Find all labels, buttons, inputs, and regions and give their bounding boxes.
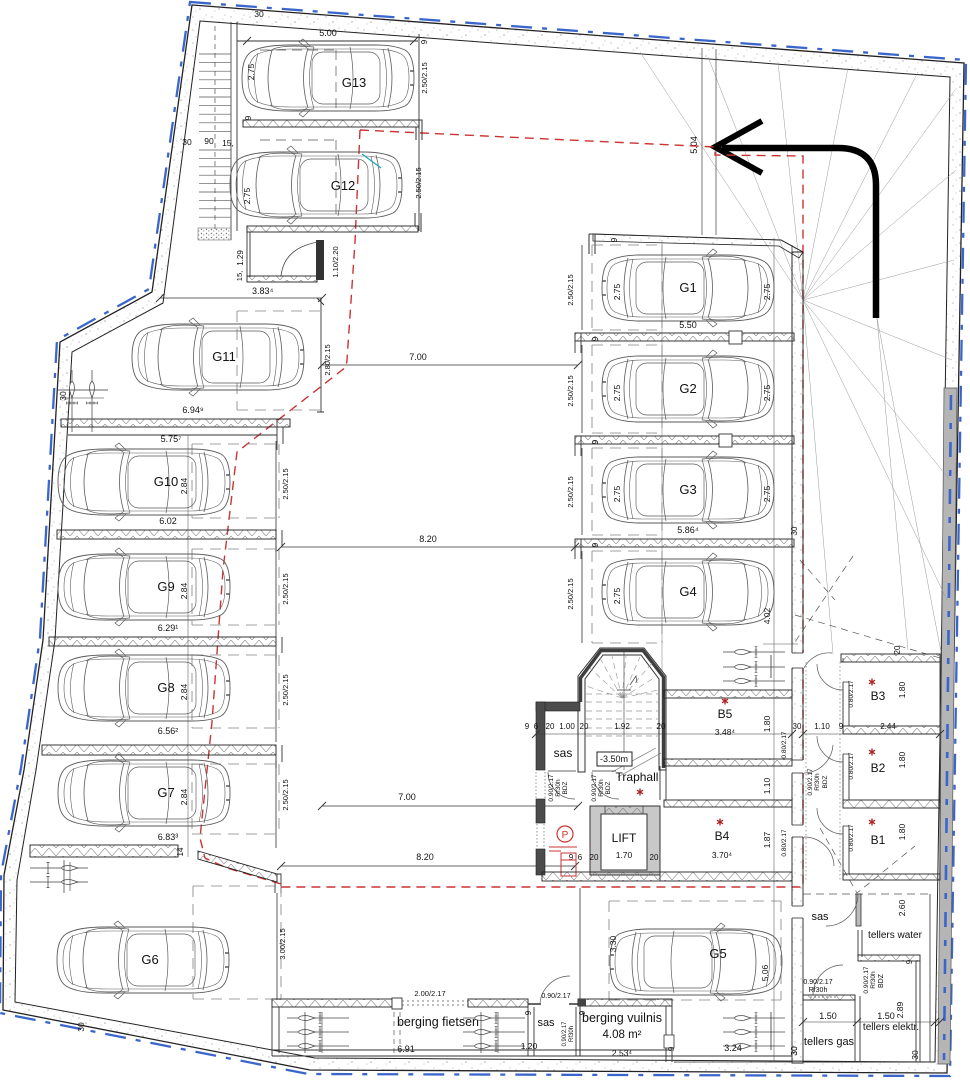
svg-text:0.80/2.17: 0.80/2.17 [781, 829, 788, 856]
svg-text:0.90/2.17: 0.90/2.17 [591, 774, 598, 801]
svg-text:2.80/2.15: 2.80/2.15 [323, 344, 332, 375]
svg-text:B4: B4 [715, 829, 730, 843]
svg-text:9: 9 [524, 1010, 533, 1015]
svg-text:9: 9 [525, 722, 530, 731]
svg-text:8.20: 8.20 [416, 852, 434, 862]
svg-text:2.89: 2.89 [895, 1001, 905, 1018]
svg-text:4.08 m²: 4.08 m² [603, 1029, 642, 1041]
svg-text:1.87: 1.87 [762, 831, 772, 848]
svg-text:2.50/2.15: 2.50/2.15 [281, 573, 290, 604]
svg-text:G9: G9 [157, 579, 174, 594]
svg-text:6.29¹: 6.29¹ [158, 623, 179, 633]
svg-text:30: 30 [793, 722, 802, 731]
svg-text:6.02: 6.02 [159, 516, 177, 526]
svg-text:2.50/2.15: 2.50/2.15 [566, 476, 575, 507]
svg-text:5.50: 5.50 [679, 320, 697, 330]
svg-text:1.80: 1.80 [897, 681, 907, 698]
svg-text:2.50/2.15: 2.50/2.15 [281, 674, 290, 705]
svg-text:1.10: 1.10 [814, 722, 830, 731]
svg-text:Rf30h: Rf30h [555, 779, 562, 797]
svg-text:Rf30h: Rf30h [870, 971, 877, 989]
svg-text:1.20: 1.20 [521, 1041, 538, 1051]
svg-text:Rf30h: Rf30h [598, 779, 605, 797]
svg-text:6: 6 [534, 722, 539, 731]
svg-text:2.75: 2.75 [762, 485, 772, 502]
svg-text:sas: sas [554, 746, 573, 760]
svg-text:2.60: 2.60 [897, 899, 907, 916]
svg-text:P: P [562, 830, 569, 841]
svg-text:7.00: 7.00 [398, 792, 416, 802]
svg-text:0.90/2.17: 0.90/2.17 [803, 979, 832, 986]
svg-text:G7: G7 [157, 785, 174, 800]
svg-text:4.02: 4.02 [762, 607, 772, 624]
svg-text:6.94⁹: 6.94⁹ [182, 405, 204, 415]
svg-text:G3: G3 [679, 482, 696, 497]
svg-text:1.50: 1.50 [877, 1011, 895, 1021]
svg-text:G10: G10 [154, 474, 179, 489]
svg-text:15,: 15, [222, 138, 234, 148]
svg-text:3.48⁴: 3.48⁴ [715, 727, 736, 737]
svg-text:0.90/2.17: 0.90/2.17 [548, 774, 555, 801]
svg-text:2.50/2.15: 2.50/2.15 [566, 578, 575, 609]
svg-text:G12: G12 [331, 178, 356, 193]
svg-text:B2: B2 [871, 761, 886, 775]
svg-text:9: 9 [244, 115, 253, 120]
svg-text:20: 20 [650, 853, 659, 862]
svg-text:2.53⁴: 2.53⁴ [612, 1048, 633, 1058]
svg-text:1.29: 1.29 [236, 250, 245, 266]
svg-text:8.20: 8.20 [419, 534, 437, 544]
svg-text:2.75: 2.75 [612, 283, 622, 300]
svg-text:9: 9 [591, 542, 600, 547]
svg-text:G5: G5 [709, 946, 726, 961]
svg-text:Rf30h: Rf30h [814, 773, 821, 791]
svg-text:5.00: 5.00 [319, 28, 337, 38]
svg-text:1.10: 1.10 [762, 777, 772, 794]
svg-text:30: 30 [789, 1046, 799, 1056]
svg-text:2.84: 2.84 [179, 477, 189, 494]
svg-text:3.00/2.15: 3.00/2.15 [278, 928, 287, 959]
svg-text:sas: sas [537, 1017, 555, 1029]
svg-text:tellers gas: tellers gas [804, 1036, 855, 1048]
svg-text:Rf30h: Rf30h [809, 987, 828, 994]
svg-text:9: 9 [591, 439, 600, 444]
svg-text:BDZ: BDZ [822, 775, 829, 788]
svg-text:G4: G4 [679, 584, 696, 599]
svg-text:1.92: 1.92 [614, 722, 630, 731]
svg-text:2.50/2.15: 2.50/2.15 [281, 468, 290, 499]
svg-text:B1: B1 [871, 833, 886, 847]
svg-text:1.80: 1.80 [897, 823, 907, 840]
svg-text:G13: G13 [342, 75, 367, 90]
svg-text:7.00: 7.00 [409, 352, 427, 362]
svg-text:1.70: 1.70 [616, 850, 633, 860]
svg-text:6.83³: 6.83³ [158, 832, 179, 842]
svg-text:0.90/2.17: 0.90/2.17 [541, 993, 570, 1000]
svg-text:1.00: 1.00 [559, 722, 575, 731]
svg-text:20: 20 [657, 722, 666, 731]
svg-text:3.83⁴: 3.83⁴ [252, 286, 274, 296]
svg-text:5.04: 5.04 [689, 136, 699, 154]
svg-text:30: 30 [182, 137, 192, 147]
svg-text:2.75: 2.75 [612, 587, 622, 604]
svg-text:3.24: 3.24 [724, 1043, 742, 1053]
svg-text:2.50/2.15: 2.50/2.15 [281, 779, 290, 810]
svg-text:0.90/2.17: 0.90/2.17 [863, 966, 870, 993]
svg-text:berging fietsen: berging fietsen [397, 1015, 479, 1029]
svg-text:G2: G2 [679, 381, 696, 396]
svg-text:14: 14 [176, 847, 185, 856]
svg-text:9: 9 [420, 39, 429, 44]
svg-text:2.50/2.15: 2.50/2.15 [414, 167, 423, 198]
svg-text:2.84: 2.84 [179, 788, 189, 805]
svg-text:2.75: 2.75 [762, 283, 772, 300]
svg-text:G11: G11 [212, 349, 236, 364]
svg-text:30: 30 [58, 391, 68, 401]
svg-text:1.80: 1.80 [897, 751, 907, 768]
svg-text:9: 9 [610, 237, 619, 242]
svg-text:0.90/2.17: 0.90/2.17 [562, 1021, 568, 1047]
svg-text:2.75: 2.75 [612, 485, 622, 502]
svg-text:2.84: 2.84 [179, 582, 189, 599]
svg-text:sas: sas [811, 911, 829, 923]
svg-text:BDZ: BDZ [878, 973, 885, 988]
svg-text:30: 30 [76, 1022, 86, 1032]
svg-text:LIFT: LIFT [612, 831, 637, 845]
svg-text:0.90/2.17: 0.90/2.17 [807, 768, 814, 795]
svg-text:G8: G8 [157, 680, 174, 695]
svg-text:3.30: 3.30 [608, 935, 618, 952]
svg-text:9: 9 [591, 336, 600, 341]
svg-text:-3.50m: -3.50m [600, 754, 628, 764]
svg-text:2.84: 2.84 [179, 683, 189, 700]
svg-text:5.06: 5.06 [760, 964, 770, 981]
svg-text:90: 90 [204, 136, 214, 146]
svg-text:B5: B5 [718, 707, 733, 721]
svg-text:BDZ: BDZ [605, 781, 612, 794]
svg-text:1.50: 1.50 [819, 1011, 837, 1021]
svg-text:B3: B3 [871, 689, 886, 703]
svg-text:9: 9 [905, 959, 914, 964]
svg-text:2.75: 2.75 [612, 384, 622, 401]
svg-text:tellers water: tellers water [868, 930, 923, 941]
svg-text:15,: 15, [235, 271, 244, 281]
svg-text:G1: G1 [679, 280, 696, 295]
svg-text:2.50/2.15: 2.50/2.15 [566, 375, 575, 406]
svg-text:2.50/2.15: 2.50/2.15 [566, 274, 575, 305]
svg-text:2.00/2.17: 2.00/2.17 [414, 989, 445, 998]
svg-text:2.75: 2.75 [242, 187, 252, 204]
svg-text:1.80: 1.80 [762, 715, 772, 732]
svg-text:tellers elektr.: tellers elektr. [863, 1022, 919, 1033]
svg-text:9: 9 [569, 853, 574, 862]
svg-text:30: 30 [910, 1050, 920, 1060]
svg-text:30: 30 [254, 9, 264, 19]
svg-text:3.70⁴: 3.70⁴ [712, 850, 733, 860]
svg-text:5.75⁷: 5.75⁷ [161, 434, 182, 444]
svg-text:berging vuilnis: berging vuilnis [582, 1011, 662, 1025]
svg-text:G6: G6 [141, 952, 158, 967]
svg-text:BDZ: BDZ [562, 781, 569, 794]
svg-text:5.86⁴: 5.86⁴ [677, 525, 699, 535]
svg-text:6: 6 [578, 853, 583, 862]
svg-text:20: 20 [546, 722, 555, 731]
svg-text:Traphall: Traphall [616, 770, 659, 784]
svg-text:1.10/2.20: 1.10/2.20 [331, 246, 340, 277]
svg-text:9: 9 [667, 1046, 676, 1051]
svg-text:2.50/2.15: 2.50/2.15 [420, 62, 429, 93]
svg-text:20: 20 [590, 853, 599, 862]
svg-text:20: 20 [580, 722, 589, 731]
svg-text:Rf30h: Rf30h [569, 1026, 575, 1042]
svg-text:2.75: 2.75 [762, 384, 772, 401]
svg-text:6.56²: 6.56² [158, 726, 179, 736]
svg-text:0.80/2.17: 0.80/2.17 [781, 731, 788, 758]
svg-text:20: 20 [893, 645, 902, 654]
svg-text:9: 9 [578, 1010, 587, 1015]
